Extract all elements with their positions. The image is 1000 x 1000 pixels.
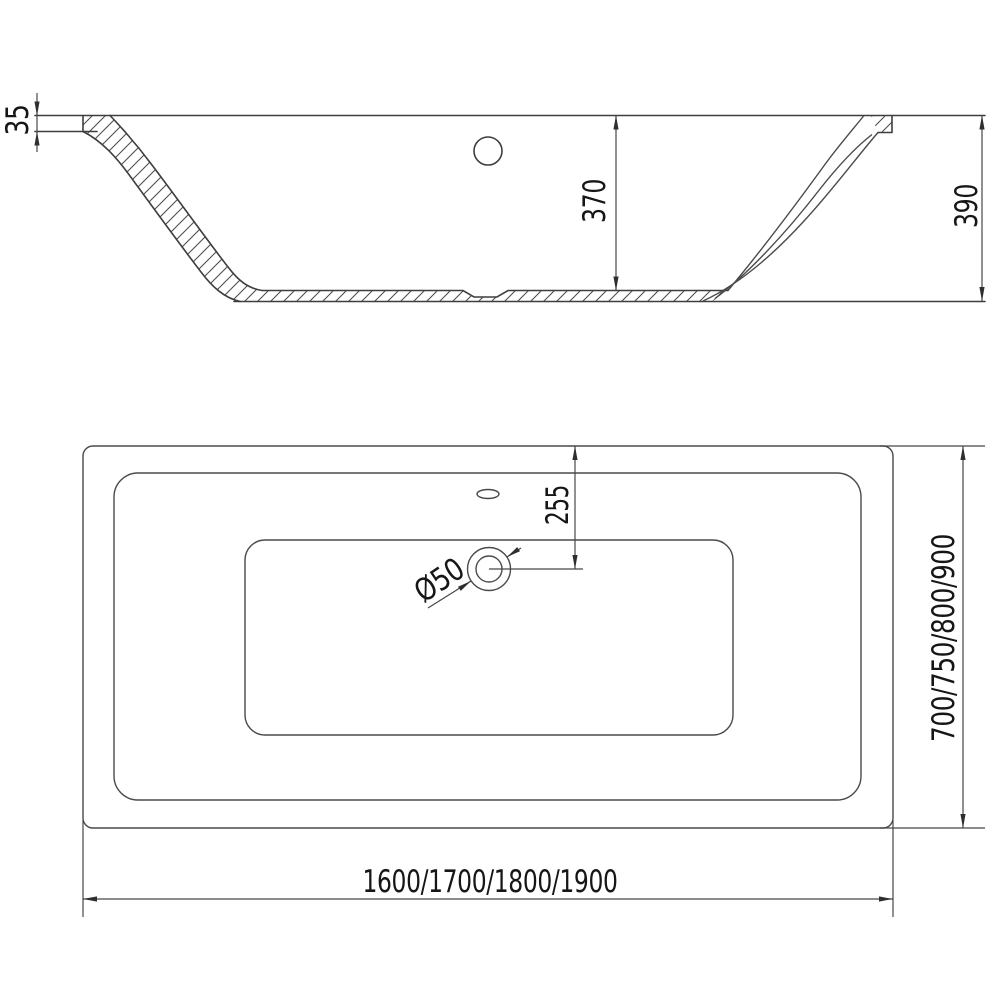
overflow-hole-plan bbox=[477, 490, 499, 499]
arrow-down-icon bbox=[979, 287, 984, 301]
arrow-right-icon bbox=[879, 896, 893, 901]
width-dimension: 700/750/800/900 bbox=[880, 446, 985, 828]
width-dimension-text: 700/750/800/900 bbox=[926, 534, 962, 742]
drain-offset-dimension: 255 bbox=[540, 446, 578, 569]
right-wall-outer-edge bbox=[703, 133, 878, 302]
rim-thickness-dimension-text: 35 bbox=[0, 105, 36, 136]
drain-offset-dimension-text: 255 bbox=[540, 485, 576, 525]
arrow-down-icon bbox=[613, 277, 618, 291]
technical-drawing-page: 35 370 390 bbox=[0, 0, 1000, 1000]
drain-diameter-dimension: Ø50 bbox=[408, 547, 521, 610]
arrow-up-icon bbox=[613, 116, 618, 130]
technical-drawing-canvas: 35 370 390 bbox=[0, 0, 1000, 1000]
right-rim-lip-hatch bbox=[871, 116, 892, 133]
overall-height-dimension: 390 bbox=[949, 116, 985, 302]
tub-outer-edge bbox=[83, 446, 893, 828]
tub-section-hatched-wall-and-floor bbox=[83, 116, 728, 302]
length-dimension-text: 1600/1700/1800/1900 bbox=[363, 864, 618, 900]
right-wall-middle-edge bbox=[715, 135, 872, 299]
overall-height-dimension-text: 390 bbox=[949, 184, 985, 228]
arrow-down-icon bbox=[960, 814, 965, 828]
arrow-down-icon bbox=[572, 555, 577, 569]
right-wall-inner-edge bbox=[728, 116, 864, 291]
length-dimension: 1600/1700/1800/1900 bbox=[83, 820, 893, 917]
section-view: 35 370 390 bbox=[0, 93, 985, 302]
tub-inner-rim-edge bbox=[114, 473, 861, 800]
drain-diameter-dimension-text: Ø50 bbox=[408, 551, 471, 610]
overflow-hole-section bbox=[474, 137, 502, 165]
arrow-up-icon bbox=[979, 116, 984, 130]
arrow-left-icon bbox=[83, 896, 97, 901]
plan-view: Ø50 255 700/750/800/900 1600/1700/1800/1… bbox=[83, 446, 985, 917]
arrow-up-icon bbox=[960, 446, 965, 460]
arrow-up-icon bbox=[572, 446, 577, 460]
inner-depth-dimension: 370 bbox=[577, 116, 619, 291]
arrow-down-left-icon bbox=[507, 547, 520, 557]
rim-thickness-dimension: 35 bbox=[0, 93, 40, 152]
inner-depth-dimension-text: 370 bbox=[577, 179, 613, 223]
